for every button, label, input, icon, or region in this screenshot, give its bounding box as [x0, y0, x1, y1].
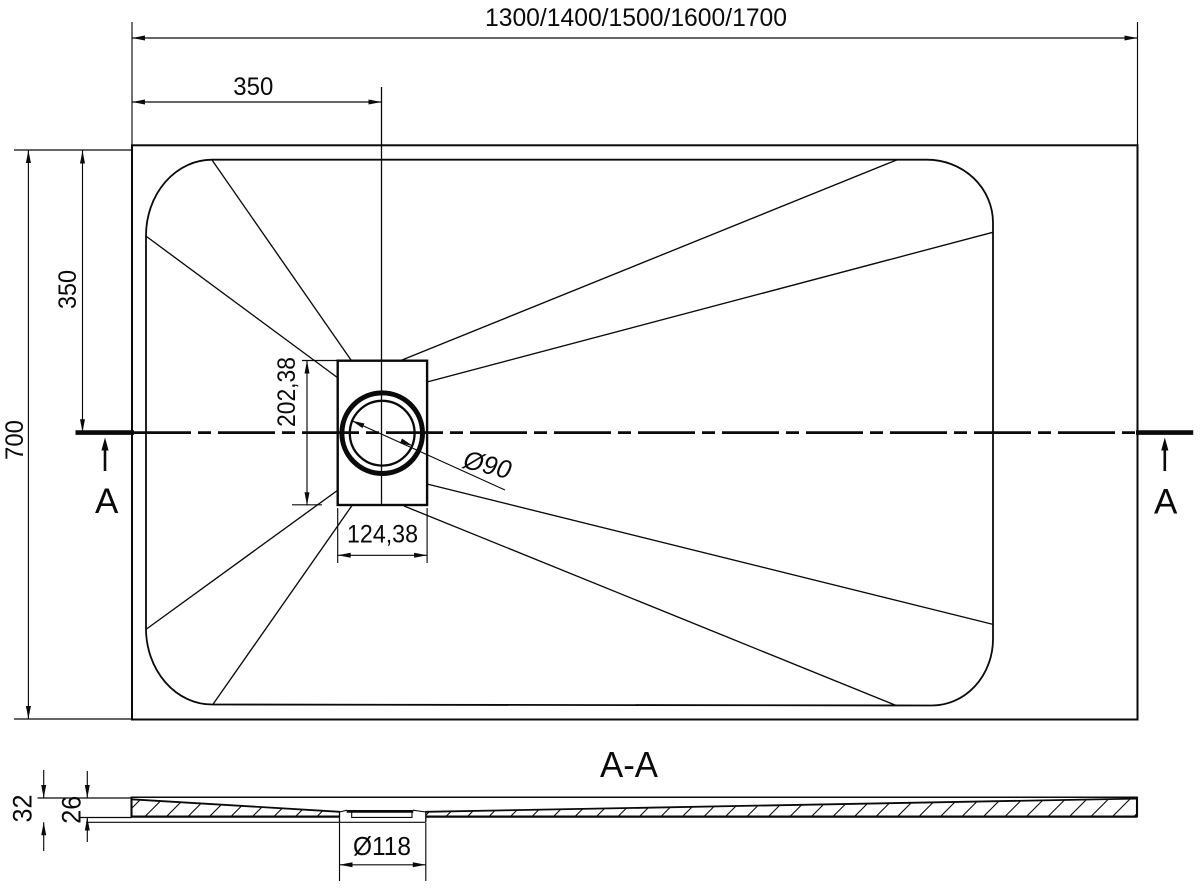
svg-text:A-A: A-A — [600, 744, 658, 785]
svg-text:Ø90: Ø90 — [460, 444, 515, 485]
svg-text:350: 350 — [233, 73, 273, 101]
svg-text:26: 26 — [57, 796, 87, 824]
svg-text:32: 32 — [8, 795, 38, 823]
svg-text:A: A — [95, 482, 119, 521]
svg-text:1300/1400/1500/1600/1700: 1300/1400/1500/1600/1700 — [485, 4, 787, 32]
svg-text:124,38: 124,38 — [347, 521, 418, 549]
svg-text:A: A — [1154, 483, 1178, 522]
svg-text:350: 350 — [54, 270, 82, 309]
svg-text:202,38: 202,38 — [273, 357, 301, 427]
svg-text:700: 700 — [1, 420, 29, 460]
svg-text:Ø118: Ø118 — [353, 831, 411, 861]
